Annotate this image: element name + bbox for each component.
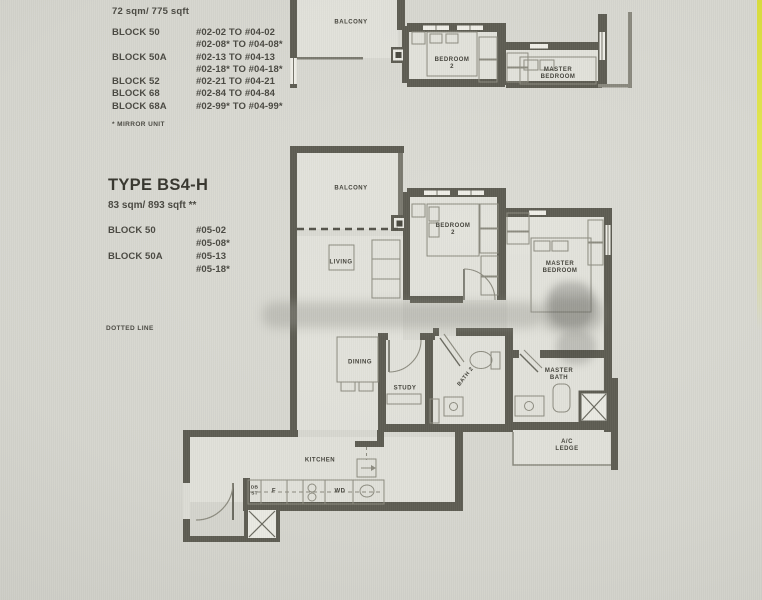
label-master-bedroom: MASTER BEDROOM [543,261,578,275]
table-row: BLOCK 50 #02-02 TO #04-02 #02-08* TO #04… [112,27,283,52]
block-unit-table: BLOCK 50 #02-02 TO #04-02 #02-08* TO #04… [112,27,283,113]
label-dining: DINING [348,359,372,366]
table-row: BLOCK 50A #05-13 #05-18* [108,250,230,276]
label-washer-dryer: WD [335,488,346,495]
yellow-edge-strip [757,0,762,330]
block-units: #05-13 #05-18* [196,250,230,276]
table-row: BLOCK 68 #02-84 TO #04-84 [112,88,283,100]
mirror-unit-footnote: * MIRROR UNIT [112,121,165,128]
block-units: #05-02 #05-08* [196,224,230,250]
label-study: STUDY [394,385,417,392]
block-label: BLOCK 52 [112,76,196,88]
block-units: #02-13 TO #04-13 #02-18* TO #04-18* [196,52,283,77]
label-bedroom2-top: BEDROOM 2 [435,57,470,71]
unit-range: #02-02 TO #04-02 [196,27,283,39]
table-row: BLOCK 50A #02-13 TO #04-13 #02-18* TO #0… [112,52,283,77]
block-units: #02-99* TO #04-99* [196,101,283,113]
block-label: BLOCK 50 [108,224,196,250]
type-block-unit-table: BLOCK 50 #05-02 #05-08* BLOCK 50A #05-13… [108,224,230,276]
unit-range: #02-21 TO #04-21 [196,76,275,88]
block-units: #02-21 TO #04-21 [196,76,275,88]
table-row: BLOCK 52 #02-21 TO #04-21 [112,76,283,88]
unit-type-title: TYPE BS4-H [108,176,208,195]
unit-range: #02-18* TO #04-18* [196,64,283,76]
small-unit-area: 72 sqm/ 775 sqft [112,6,189,17]
unit-range: #05-13 [196,250,230,263]
label-kitchen: KITCHEN [305,457,335,464]
block-label: BLOCK 50A [108,250,196,276]
label-db-st: DB ST [251,485,258,497]
block-units: #02-84 TO #04-84 [196,88,275,100]
x-marked-shaft [580,392,608,422]
label-living: LIVING [329,259,352,266]
block-label: BLOCK 68A [112,101,196,113]
dotted-line-legend: DOTTED LINE [106,325,154,332]
label-master-bath: MASTER BATH [545,368,573,382]
unit-range: #05-02 [196,224,230,237]
label-fridge: F [272,488,276,495]
label-balcony-top: BALCONY [334,19,367,26]
table-row: BLOCK 50 #05-02 #05-08* [108,224,230,250]
block-units: #02-02 TO #04-02 #02-08* TO #04-08* [196,27,283,52]
label-master-bedroom-top: MASTER BEDROOM [541,67,576,81]
block-label: BLOCK 50A [112,52,196,77]
unit-range: #02-13 TO #04-13 [196,52,283,64]
floorplan-photo: 72 sqm/ 775 sqft BLOCK 50 #02-02 TO #04-… [0,0,762,600]
unit-range: #02-08* TO #04-08* [196,39,283,51]
label-bedroom2: BEDROOM 2 [436,223,471,237]
label-balcony: BALCONY [334,185,367,192]
unit-range: #02-84 TO #04-84 [196,88,275,100]
label-ac-ledge: A/C LEDGE [555,439,578,453]
table-row: BLOCK 68A #02-99* TO #04-99* [112,101,283,113]
unit-range: #05-18* [196,263,230,276]
block-label: BLOCK 68 [112,88,196,100]
unit-range: #05-08* [196,237,230,250]
x-marked-box-entry [246,508,278,540]
unit-range: #02-99* TO #04-99* [196,101,283,113]
unit-type-area: 83 sqm/ 893 sqft ** [108,200,196,211]
block-label: BLOCK 50 [112,27,196,52]
